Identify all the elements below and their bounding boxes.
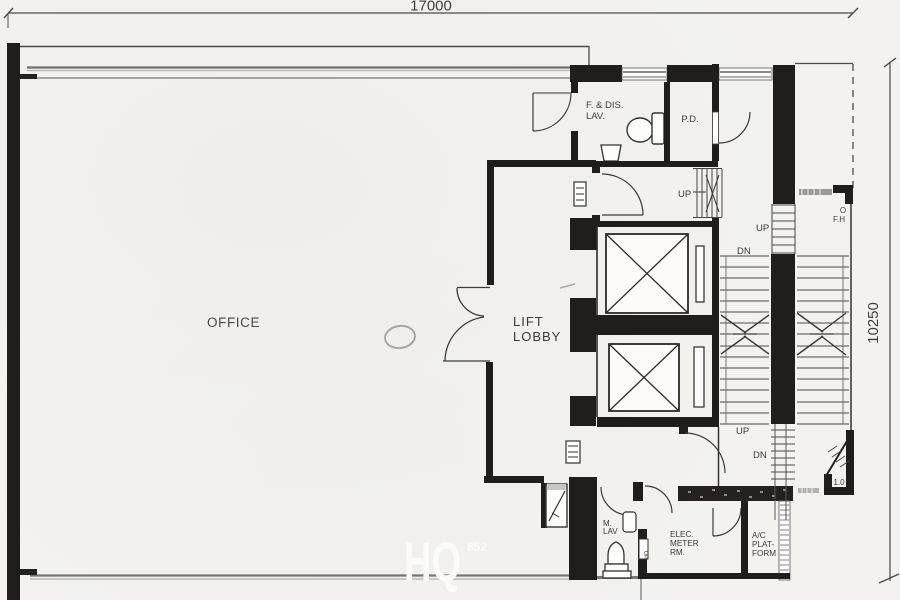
svg-text:F. & DIS.: F. & DIS. xyxy=(586,100,623,111)
svg-text:10250: 10250 xyxy=(865,302,882,344)
svg-text:LAV.: LAV. xyxy=(586,111,605,122)
svg-text:ELEC.: ELEC. xyxy=(670,530,694,539)
svg-text:1.0: 1.0 xyxy=(833,478,845,487)
svg-text:FORM: FORM xyxy=(752,549,776,558)
svg-text:P.D.: P.D. xyxy=(681,114,698,125)
svg-text:LOBBY: LOBBY xyxy=(513,329,561,344)
svg-text:UP: UP xyxy=(736,426,749,437)
svg-text:UP: UP xyxy=(642,551,648,559)
svg-text:METER: METER xyxy=(670,539,699,548)
svg-text:17000: 17000 xyxy=(410,0,452,15)
svg-text:UP: UP xyxy=(678,189,691,200)
svg-text:O: O xyxy=(840,206,846,215)
svg-text:RM.: RM. xyxy=(670,548,685,557)
svg-text:HQ: HQ xyxy=(404,532,461,594)
svg-text:OFFICE: OFFICE xyxy=(207,315,260,330)
svg-text:852: 852 xyxy=(467,540,487,554)
svg-text:PLAT-: PLAT- xyxy=(752,540,774,549)
svg-text:LIFT: LIFT xyxy=(513,314,544,329)
svg-text:F.H: F.H xyxy=(833,215,845,224)
svg-text:UP: UP xyxy=(756,223,769,234)
svg-text:LAV: LAV xyxy=(603,527,618,536)
svg-text:A/C: A/C xyxy=(752,531,766,540)
svg-text:DN: DN xyxy=(737,246,751,257)
svg-text:DN: DN xyxy=(753,450,767,461)
